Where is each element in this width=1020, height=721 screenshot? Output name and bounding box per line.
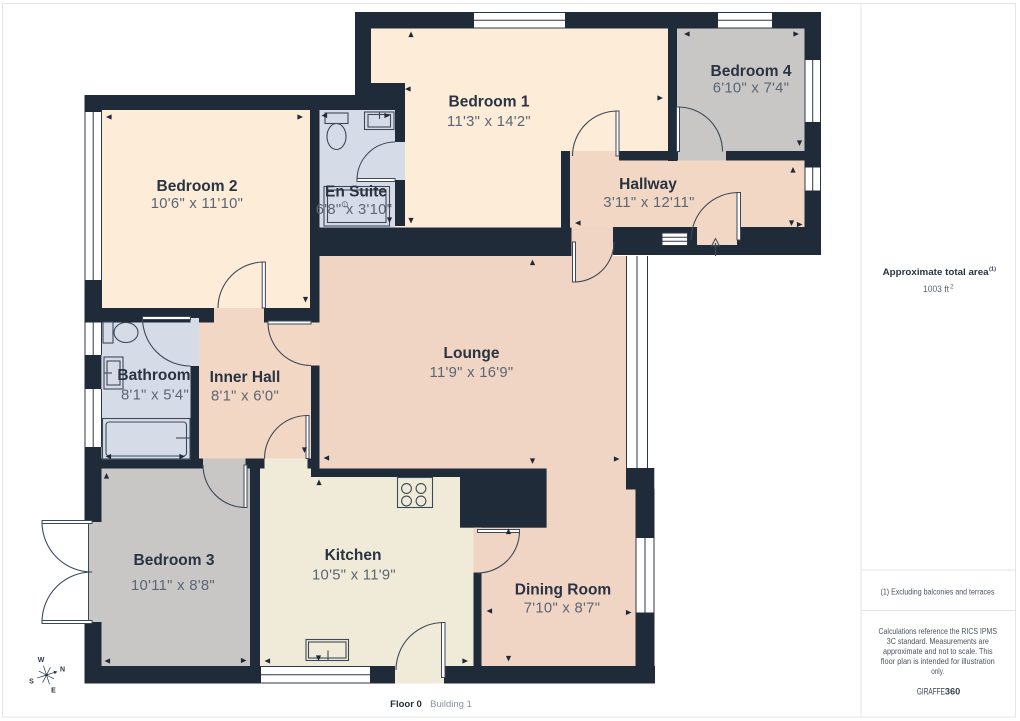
- svg-text:8'1" x 6'0": 8'1" x 6'0": [211, 389, 279, 405]
- svg-text:En Suite: En Suite: [325, 184, 387, 201]
- svg-text:Bedroom 2: Bedroom 2: [157, 178, 238, 195]
- svg-text:2: 2: [950, 284, 954, 291]
- svg-text:10'6" x 11'10": 10'6" x 11'10": [151, 196, 243, 212]
- svg-text:Lounge: Lounge: [444, 345, 500, 362]
- svg-text:Approximate total area: Approximate total area: [883, 267, 990, 278]
- svg-text:10'11" x 8'8": 10'11" x 8'8": [131, 578, 215, 594]
- svg-text:6'8" x 3'10": 6'8" x 3'10": [316, 202, 393, 218]
- svg-text:Building 1: Building 1: [430, 699, 472, 710]
- svg-text:Hallway: Hallway: [619, 176, 677, 193]
- svg-text:GIRAFFE: GIRAFFE: [917, 687, 945, 697]
- svg-text:Calculations reference the RIC: Calculations reference the RICS IPMS: [879, 626, 998, 636]
- svg-text:S: S: [29, 679, 34, 686]
- svg-text:Bedroom 3: Bedroom 3: [134, 552, 215, 569]
- svg-text:W: W: [38, 657, 45, 664]
- svg-text:1003 ft: 1003 ft: [923, 284, 949, 295]
- svg-text:7'10" x 8'7": 7'10" x 8'7": [524, 601, 601, 617]
- svg-text:approximate and not to scale.: approximate and not to scale. This: [883, 646, 993, 656]
- svg-text:11'3" x 14'2": 11'3" x 14'2": [447, 114, 531, 130]
- svg-text:11'9" x 16'9": 11'9" x 16'9": [430, 365, 514, 381]
- svg-text:Bathroom: Bathroom: [117, 367, 190, 384]
- svg-text:Inner Hall: Inner Hall: [210, 369, 281, 386]
- svg-text:Dining Room: Dining Room: [515, 582, 611, 599]
- svg-text:3'11" x 12'11": 3'11" x 12'11": [603, 195, 694, 211]
- svg-text:N: N: [60, 667, 65, 674]
- svg-text:Bedroom 1: Bedroom 1: [449, 94, 530, 111]
- svg-text:10'5" x 11'9": 10'5" x 11'9": [312, 568, 396, 584]
- svg-text:(1): (1): [989, 267, 996, 273]
- svg-text:Bedroom 4: Bedroom 4: [711, 63, 792, 80]
- svg-text:Kitchen: Kitchen: [325, 547, 382, 564]
- svg-text:floor plan is intended for ill: floor plan is intended for illustration: [881, 656, 995, 666]
- svg-text:E: E: [51, 688, 56, 695]
- svg-text:(1) Excluding balconies and te: (1) Excluding balconies and terraces: [881, 587, 995, 597]
- svg-text:6'10" x 7'4": 6'10" x 7'4": [713, 81, 790, 97]
- svg-text:Floor 0: Floor 0: [390, 699, 422, 710]
- svg-text:3C standard. Measurements are: 3C standard. Measurements are: [887, 636, 989, 646]
- svg-text:8'1" x 5'4": 8'1" x 5'4": [121, 388, 189, 404]
- svg-text:only.: only.: [931, 666, 944, 676]
- svg-text:360: 360: [945, 687, 960, 697]
